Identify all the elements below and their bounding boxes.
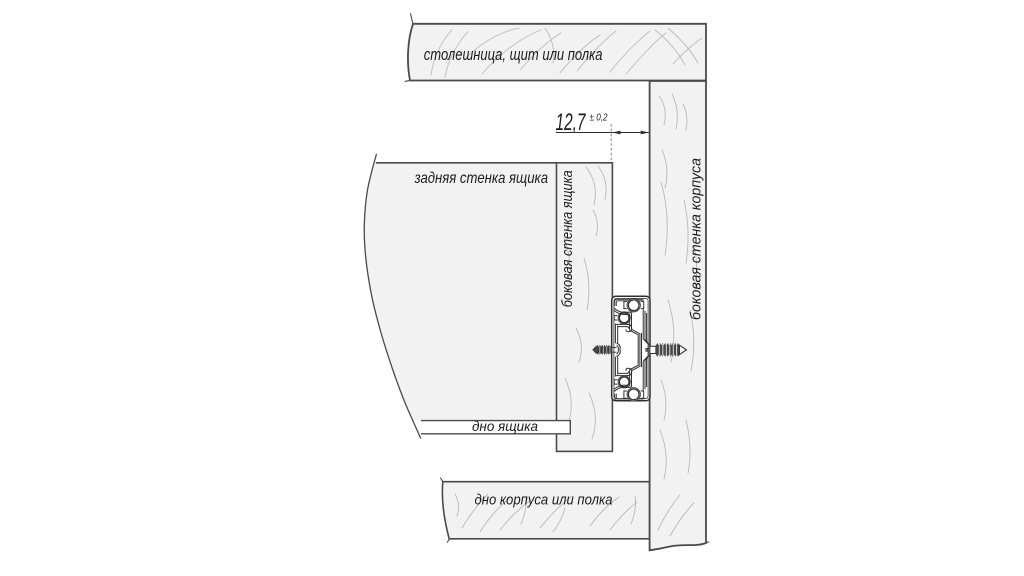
- svg-text:задняя стенка ящика: задняя стенка ящика: [414, 170, 548, 187]
- svg-text:дно ящика: дно ящика: [472, 419, 538, 434]
- svg-text:± 0,2: ± 0,2: [590, 111, 608, 123]
- svg-text:столешница, щит или полка: столешница, щит или полка: [424, 45, 603, 64]
- svg-text:12,7: 12,7: [556, 109, 587, 136]
- svg-text:дно корпуса или полка: дно корпуса или полка: [475, 492, 613, 509]
- svg-text:боковая стенка ящика: боковая стенка ящика: [560, 170, 576, 307]
- svg-text:боковая стенка корпуса: боковая стенка корпуса: [688, 158, 705, 320]
